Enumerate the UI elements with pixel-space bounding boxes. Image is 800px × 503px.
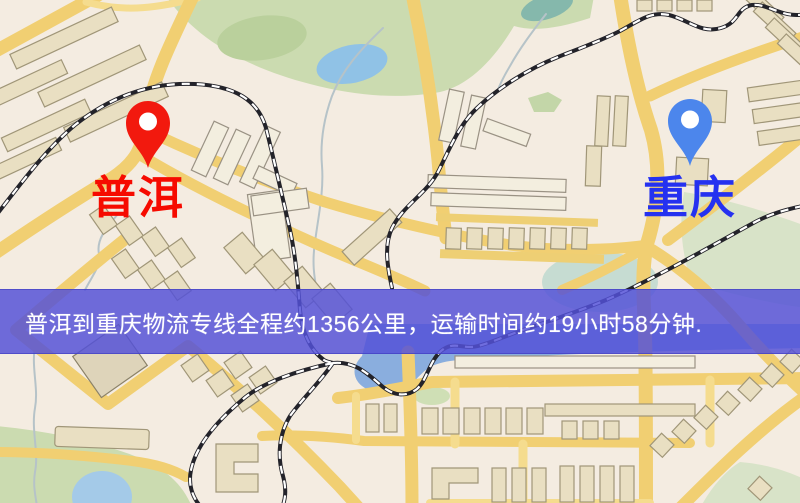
map-container[interactable]: 普洱 重庆 普洱到重庆物流专线全程约1356公里，运输时间约19小时58分钟. xyxy=(0,0,800,503)
origin-pin[interactable] xyxy=(124,100,172,170)
pin-hole xyxy=(139,113,157,131)
pin-hole xyxy=(681,111,699,129)
location-pin-icon xyxy=(124,100,172,170)
destination-pin[interactable] xyxy=(666,98,714,168)
pin-body xyxy=(668,99,712,166)
route-info-text: 普洱到重庆物流专线全程约1356公里，运输时间约19小时58分钟. xyxy=(0,305,702,339)
pin-body xyxy=(126,101,170,168)
route-info-banner: 普洱到重庆物流专线全程约1356公里，运输时间约19小时58分钟. xyxy=(0,289,800,354)
location-pin-icon xyxy=(666,98,714,168)
base-map xyxy=(0,0,800,503)
